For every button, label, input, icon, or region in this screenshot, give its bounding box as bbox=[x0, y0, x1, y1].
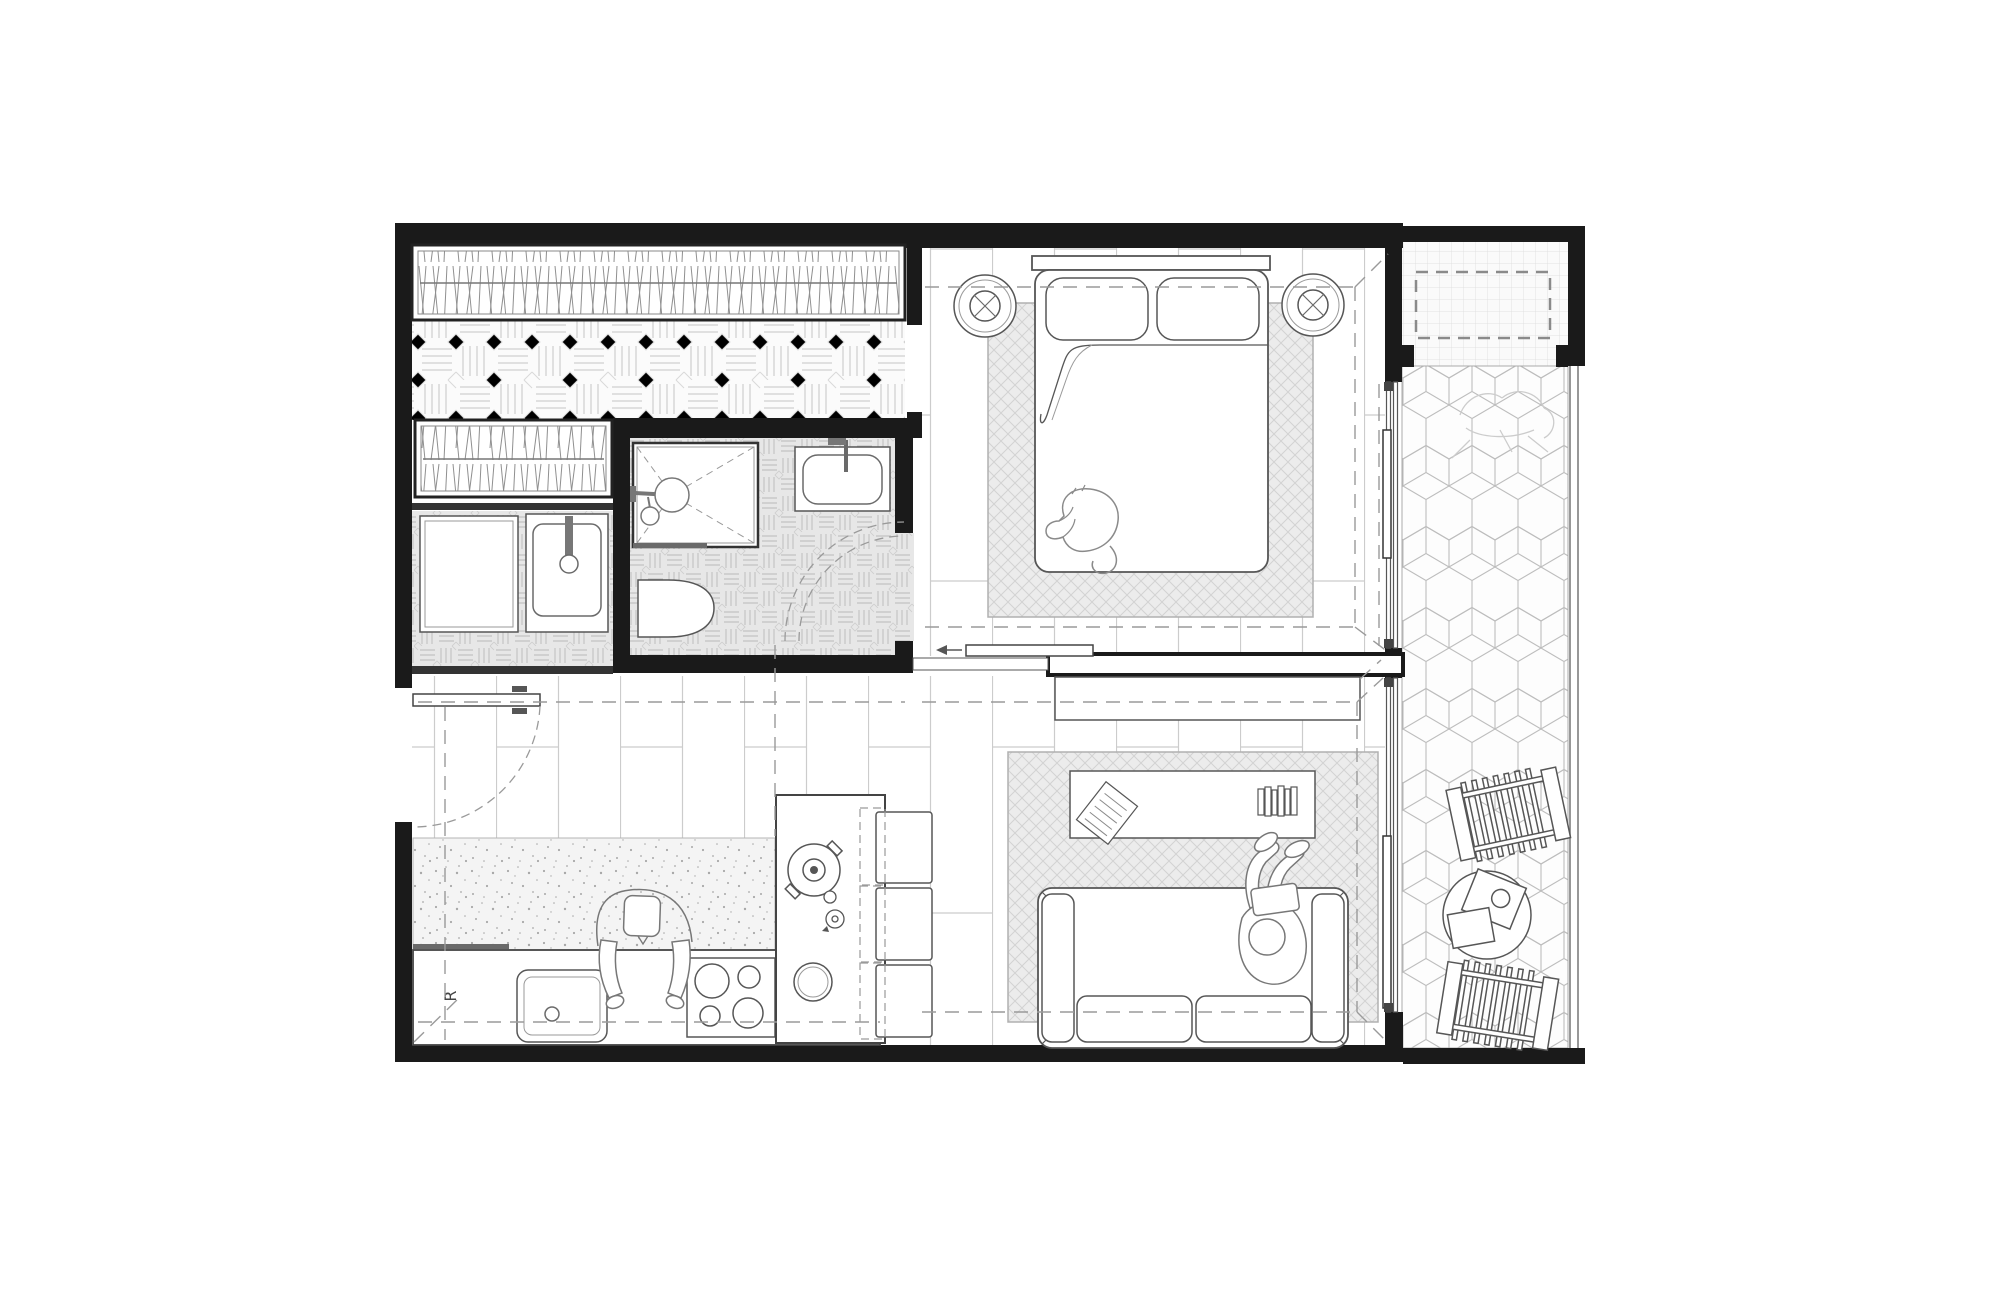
wall-bathroom-left bbox=[613, 438, 630, 673]
wall-bathroom-top bbox=[613, 418, 922, 438]
floor-plan-drawing: R bbox=[0, 0, 2000, 1294]
cooktop bbox=[687, 958, 775, 1037]
stool-2 bbox=[876, 888, 932, 960]
armrest-right bbox=[1312, 894, 1344, 1042]
counter-edge-mark bbox=[413, 944, 509, 949]
bowl bbox=[794, 963, 832, 1001]
vanity-faucet-handle bbox=[828, 438, 846, 445]
door-pocket-track bbox=[913, 658, 1048, 670]
coffee-table bbox=[1070, 771, 1315, 844]
entry-door-handle-a bbox=[512, 686, 527, 692]
shower-head bbox=[655, 478, 689, 512]
tile-floor-bath-doorway bbox=[895, 533, 914, 641]
washing-machine-inner bbox=[425, 521, 513, 627]
wall-closet-bedroom-upper bbox=[907, 248, 922, 325]
sideboard bbox=[1055, 677, 1360, 720]
wardrobe-short bbox=[415, 420, 612, 497]
kitchen-island bbox=[776, 795, 885, 1043]
headboard bbox=[1032, 256, 1270, 270]
glass-door-panel bbox=[1383, 430, 1391, 558]
vanity-basin bbox=[803, 455, 882, 504]
laundry-room bbox=[420, 514, 608, 632]
speckled-floor-kitchen bbox=[413, 838, 775, 950]
laundry-faucet-head bbox=[560, 555, 578, 573]
alcove-door-stub-right bbox=[1556, 345, 1568, 367]
sliding-door-panel bbox=[966, 645, 1093, 656]
parquet-floor-closet bbox=[412, 320, 905, 420]
wall-bedroom-bottom bbox=[1048, 654, 1403, 675]
wall-balcony-right bbox=[1568, 226, 1585, 366]
armrest-left bbox=[1042, 894, 1074, 1042]
head bbox=[623, 895, 660, 936]
wall-laundry-bottom bbox=[412, 666, 613, 674]
balcony-glass-door-bedroom bbox=[1383, 382, 1398, 648]
wall-balcony-bottom bbox=[1403, 1048, 1585, 1064]
vanity-sink bbox=[795, 438, 890, 511]
wall-bathroom-bottom bbox=[613, 655, 913, 673]
entry-door-handle-b bbox=[512, 708, 527, 714]
back-cushion-right bbox=[1196, 996, 1311, 1042]
wall-bathroom-right-upper bbox=[895, 438, 913, 533]
back-cushion-left bbox=[1077, 996, 1192, 1042]
wall-left-lower bbox=[395, 822, 412, 1062]
grid-floor-balcony-alcove bbox=[1402, 242, 1568, 366]
round-side-table-left bbox=[954, 275, 1016, 337]
wardrobe-long bbox=[412, 245, 905, 320]
book-in-hands bbox=[1250, 883, 1299, 916]
wall-left-upper bbox=[395, 223, 412, 688]
wall-bathroom-right-lower bbox=[895, 641, 913, 673]
shower-threshold bbox=[633, 543, 707, 548]
wall-balcony-top bbox=[1403, 226, 1585, 242]
hand-shower bbox=[641, 507, 659, 525]
kitchen-sink bbox=[517, 970, 607, 1042]
glass-door-panel bbox=[1383, 836, 1391, 1008]
laundry-faucet bbox=[565, 516, 573, 558]
wall-laundry-top bbox=[412, 503, 613, 510]
book-stack bbox=[1258, 786, 1297, 816]
toilet bbox=[638, 580, 714, 637]
head bbox=[1249, 919, 1285, 955]
walk-in-shower bbox=[630, 443, 758, 548]
wall-right-bottom bbox=[1385, 1012, 1403, 1062]
wall-bedroom-right bbox=[1385, 242, 1402, 382]
alcove-door-stub-left bbox=[1402, 345, 1414, 367]
entry-door-leaf bbox=[413, 694, 540, 706]
floor-plan-sheet: R bbox=[0, 0, 2000, 1294]
refrigerator-label: R bbox=[441, 990, 460, 1001]
stool-3 bbox=[876, 965, 932, 1037]
balcony-glass-door-living bbox=[1383, 678, 1398, 1012]
cup bbox=[824, 891, 836, 903]
round-side-table-right bbox=[1282, 274, 1344, 336]
